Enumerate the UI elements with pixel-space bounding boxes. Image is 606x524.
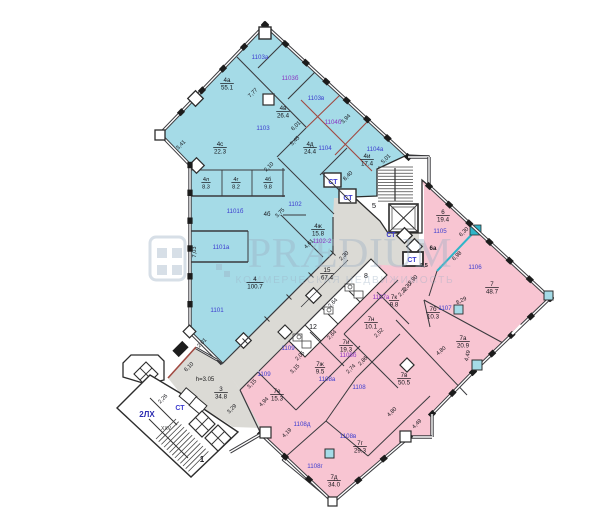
svg-text:7а: 7а bbox=[460, 335, 467, 342]
svg-text:7и: 7и bbox=[343, 339, 350, 346]
svg-text:4л: 4л bbox=[203, 177, 209, 183]
svg-text:20.9: 20.9 bbox=[457, 343, 470, 350]
svg-text:17.4: 17.4 bbox=[361, 161, 374, 168]
svg-text:15.3: 15.3 bbox=[271, 396, 284, 403]
svg-text:1108в: 1108в bbox=[340, 433, 357, 440]
svg-text:7е: 7е bbox=[274, 388, 281, 395]
svg-text:1103б: 1103б bbox=[282, 75, 299, 82]
svg-text:1106: 1106 bbox=[468, 264, 482, 271]
svg-text:7д: 7д bbox=[330, 474, 337, 481]
svg-text:4ж: 4ж bbox=[314, 223, 322, 230]
svg-text:СТ: СТ bbox=[175, 405, 185, 412]
svg-text:55.1: 55.1 bbox=[221, 85, 234, 92]
svg-text:50.5: 50.5 bbox=[398, 380, 411, 387]
svg-text:1103: 1103 bbox=[256, 125, 270, 132]
svg-text:9.8: 9.8 bbox=[264, 185, 272, 191]
svg-text:8.3: 8.3 bbox=[202, 185, 210, 191]
svg-text:4а: 4а bbox=[224, 77, 231, 84]
svg-text:1107: 1107 bbox=[438, 305, 452, 312]
svg-text:4: 4 bbox=[253, 276, 257, 283]
svg-text:1105: 1105 bbox=[433, 228, 447, 235]
svg-text:34.8: 34.8 bbox=[215, 394, 228, 401]
svg-text:7г: 7г bbox=[357, 440, 363, 447]
svg-text:19.4: 19.4 bbox=[437, 217, 450, 224]
svg-text:26.4: 26.4 bbox=[277, 113, 290, 120]
svg-text:48.7: 48.7 bbox=[486, 289, 499, 296]
svg-text:24.4: 24.4 bbox=[304, 149, 317, 156]
svg-text:100.7: 100.7 bbox=[247, 284, 263, 291]
svg-text:4в: 4в bbox=[280, 105, 287, 112]
svg-text:9.8: 9.8 bbox=[390, 302, 399, 309]
svg-text:29.3: 29.3 bbox=[354, 448, 367, 455]
svg-text:3: 3 bbox=[219, 386, 223, 393]
svg-text:4и: 4и bbox=[364, 153, 371, 160]
svg-text:1109: 1109 bbox=[281, 345, 295, 352]
svg-text:19.3: 19.3 bbox=[340, 347, 353, 354]
svg-text:10.3: 10.3 bbox=[427, 314, 440, 321]
svg-text:5: 5 bbox=[372, 201, 376, 210]
svg-text:КОММЕРЧЕСКАЯ НЕДВИЖИМОСТЬ: КОММЕРЧЕСКАЯ НЕДВИЖИМОСТЬ bbox=[236, 275, 455, 286]
svg-text:1104: 1104 bbox=[318, 145, 332, 152]
svg-text:7,03: 7,03 bbox=[192, 247, 198, 258]
svg-text:1103в: 1103в bbox=[308, 95, 325, 102]
svg-text:1108г: 1108г bbox=[307, 463, 323, 470]
svg-text:1102: 1102 bbox=[288, 201, 302, 208]
svg-text:4с: 4с bbox=[217, 141, 224, 148]
svg-text:7б: 7б bbox=[430, 306, 437, 313]
svg-text:4г: 4г bbox=[233, 177, 238, 183]
svg-text:6а: 6а bbox=[430, 245, 437, 252]
svg-text:15: 15 bbox=[324, 267, 331, 274]
svg-text:1108а: 1108а bbox=[319, 376, 336, 383]
svg-text:1103а: 1103а bbox=[252, 54, 269, 61]
svg-text:4б: 4б bbox=[265, 177, 271, 183]
svg-text:1101: 1101 bbox=[210, 307, 224, 314]
svg-text:7в: 7в bbox=[401, 372, 408, 379]
svg-text:1109: 1109 bbox=[257, 371, 271, 378]
svg-text:1: 1 bbox=[200, 455, 205, 464]
svg-text:1108: 1108 bbox=[352, 384, 366, 391]
svg-text:7н: 7н bbox=[368, 316, 375, 323]
svg-text:4д: 4д bbox=[306, 141, 313, 148]
svg-text:1107а: 1107а bbox=[373, 294, 390, 301]
svg-text:67.4: 67.4 bbox=[321, 275, 334, 282]
svg-text:8.2: 8.2 bbox=[232, 185, 240, 191]
svg-text:7: 7 bbox=[490, 281, 494, 288]
svg-text:1104а: 1104а bbox=[367, 146, 384, 153]
svg-text:7к: 7к bbox=[391, 294, 397, 301]
svg-text:1102-2: 1102-2 bbox=[313, 238, 332, 245]
svg-text:4б: 4б bbox=[264, 212, 271, 218]
svg-text:6: 6 bbox=[441, 209, 445, 216]
svg-text:PRÆDIUM: PRÆDIUM bbox=[248, 231, 452, 277]
svg-text:34.0: 34.0 bbox=[328, 482, 341, 489]
svg-text:1108д: 1108д bbox=[294, 421, 311, 428]
svg-text:7ж: 7ж bbox=[316, 361, 324, 368]
svg-text:9.5: 9.5 bbox=[316, 369, 325, 376]
svg-text:22.3: 22.3 bbox=[214, 149, 227, 156]
svg-text:10.1: 10.1 bbox=[365, 324, 378, 331]
svg-text:1101б: 1101б bbox=[227, 208, 244, 215]
svg-text:1101а: 1101а bbox=[213, 244, 230, 251]
svg-text:1104б: 1104б bbox=[325, 119, 342, 126]
svg-text:15.8: 15.8 bbox=[312, 231, 325, 238]
svg-text:h=3.05: h=3.05 bbox=[196, 377, 215, 383]
svg-text:2ЛХ: 2ЛХ bbox=[139, 410, 155, 419]
svg-text:ХХV: ХХV bbox=[161, 426, 172, 432]
